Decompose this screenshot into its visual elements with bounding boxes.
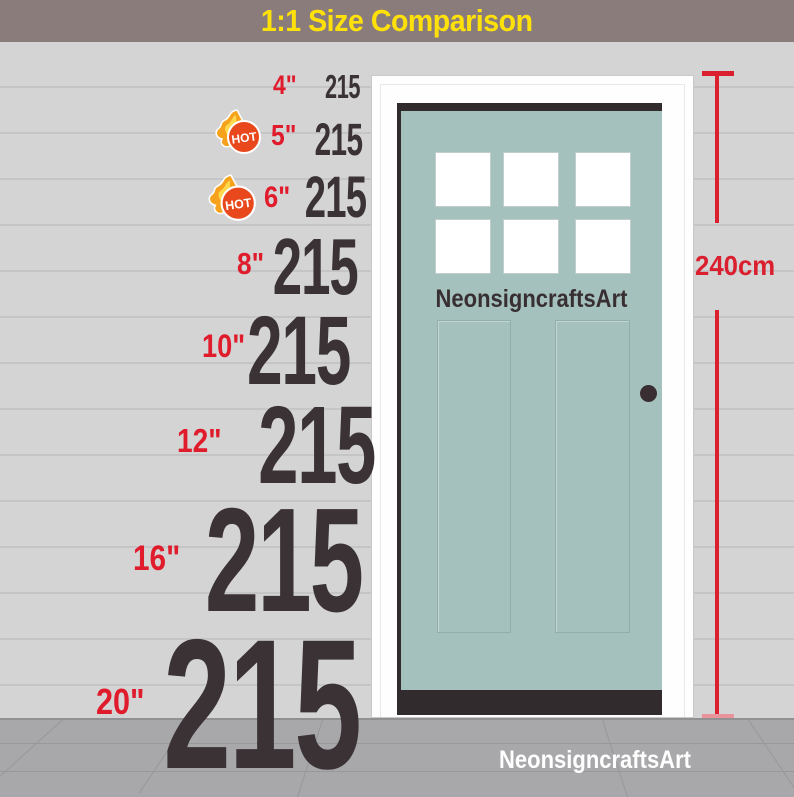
size-sample-4in: 215: [325, 70, 360, 103]
door-window-pane: [575, 152, 631, 207]
size-label-16in: 16": [133, 541, 180, 576]
size-label-12in: 12": [177, 424, 222, 457]
door-window-pane: [435, 219, 491, 274]
hot-flame-icon: HOT: [207, 174, 259, 227]
title-bar: 1:1 Size Comparison: [0, 0, 794, 42]
size-sample-20in: 215: [164, 613, 360, 797]
floor-tile-line: [748, 720, 794, 794]
door-window-pane: [503, 219, 559, 274]
door-panel: [437, 320, 511, 633]
floor-tile-line: [0, 743, 794, 744]
measure-line-upper: [715, 73, 719, 223]
size-sample-8in: 215: [273, 227, 358, 307]
floor: NeonsigncraftsArt: [0, 718, 794, 797]
door-knob: [640, 385, 657, 402]
measure-bottom-cap: [702, 714, 734, 718]
size-sample-6in: 215: [304, 169, 366, 227]
size-sample-5in: 215: [314, 117, 362, 162]
size-label-10in: 10": [202, 330, 245, 362]
door-window-pane: [575, 219, 631, 274]
size-label-8in: 8": [237, 248, 264, 279]
page-title: 1:1 Size Comparison: [261, 3, 533, 39]
door-frame: NeonsigncraftsArt: [371, 75, 694, 718]
size-label-5in: 5": [271, 122, 296, 151]
door-face: NeonsigncraftsArt: [401, 111, 662, 690]
door-panel: [555, 320, 630, 633]
size-comparison-graphic: 1:1 Size Comparison NeonsigncraftsArt Ne…: [0, 0, 794, 797]
hot-flame-icon: HOT: [214, 109, 264, 160]
door: NeonsigncraftsArt: [397, 103, 662, 715]
door-window-pane: [435, 152, 491, 207]
measure-line-lower: [715, 310, 719, 718]
size-label-20in: 20": [96, 684, 145, 720]
door-window-pane: [503, 152, 559, 207]
size-label-6in: 6": [264, 183, 290, 213]
floor-watermark-text: NeonsigncraftsArt: [494, 746, 696, 775]
door-height-label: 240cm: [695, 250, 775, 282]
door-brand-text: NeonsigncraftsArt: [417, 285, 647, 314]
size-label-4in: 4": [273, 72, 297, 99]
